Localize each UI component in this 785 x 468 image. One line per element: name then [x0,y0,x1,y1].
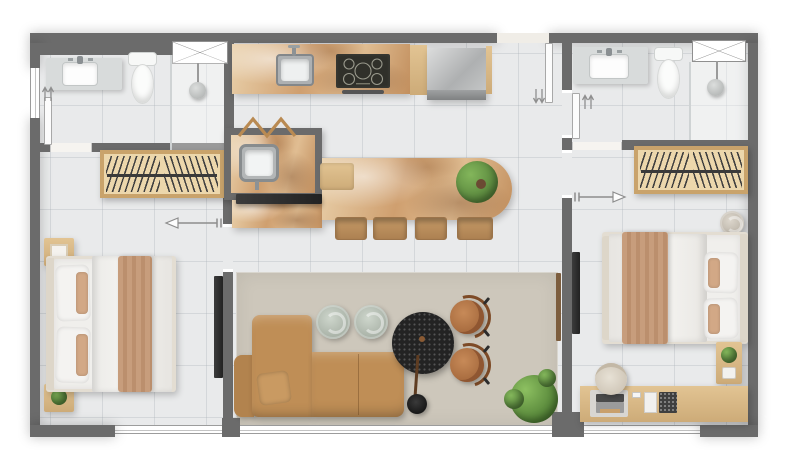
faucet-handle-icon [88,58,93,61]
jamb [562,150,572,153]
wall-left-lower [30,118,40,425]
laundry-basin [245,150,273,176]
wardrobe-rod [641,170,741,173]
wall-bottom-right [700,425,758,437]
desk-chair-seat [595,363,627,395]
bathroom-left-handle-arrows-icon [41,83,55,103]
stool-1 [335,217,367,240]
door-gap-bathroom-right [562,90,572,138]
wall-hall-right-a [562,43,572,90]
kitchen-sink [276,54,314,86]
lamp-icon [722,367,736,379]
lamp-finial-icon [419,336,425,342]
stool-2 [373,217,407,240]
faucet-handle-icon [597,50,602,53]
wardrobe-right [634,146,748,194]
wall-top-left [30,33,497,43]
jamb [562,195,572,198]
jamb [562,135,572,138]
accent-pillow [76,334,88,376]
laundry-faucet-icon [255,181,259,190]
window-shower-right [692,40,746,62]
bedroom-right-swing-arrow-icon [572,190,628,204]
entry-opening [497,33,549,43]
sink-left-bath [62,62,98,86]
screenshot-root: { "canvas": {"width": 785, "height": 468… [0,0,785,468]
accent-pillow [76,272,88,314]
sink-basin [281,59,309,81]
pouf-1 [316,305,350,339]
headboard [46,258,54,390]
pouf-2 [354,305,388,339]
accent-pillow [708,304,720,334]
floor-plan [30,33,758,437]
sofa-seam [358,354,359,415]
oven-handle [342,90,384,94]
phone [632,392,641,398]
toilet-right [652,46,686,104]
tv-panel-bedroom-left [214,276,223,378]
faucet-handle-icon [617,50,622,53]
sofa-armrest [234,355,254,417]
drying-rack-icon [236,115,300,139]
tv-panel-bedroom-right [572,252,580,334]
armchair-seat [450,348,484,382]
coffee-table [392,312,454,374]
wardrobe-rod [107,174,216,177]
entry-door-leaf [545,43,553,103]
window-bedroom-left [115,425,222,434]
living-plant-leaf [504,389,524,409]
armchair-seat [450,300,484,334]
wall-right [748,43,758,425]
island-left-slab [232,200,322,228]
bed-throw [118,256,152,392]
stool-3 [415,217,447,240]
wall-left-upper [30,43,40,68]
x-glass-icon [693,41,745,61]
wall-hall-right-c [562,198,572,425]
plant-pot-icon [476,179,486,189]
jamb [562,90,572,93]
faucet-icon [77,56,83,64]
wood-slat-panel [556,273,561,341]
entry-door-handle-arrows-icon [532,87,546,107]
kitchen-faucet-icon [288,45,300,48]
tv-panel-island [236,194,322,204]
living-plant-leaf [538,369,556,387]
faucet-handle-icon [68,58,73,61]
chair-leg-icon [483,329,490,337]
shower-zone-right [689,62,748,140]
plant-icon [721,347,737,363]
bedroom-left-swing-arrow-icon [162,216,224,230]
dark-box [659,392,677,413]
laptop-screen [596,394,624,402]
wardrobe-left [100,150,224,198]
wall-hall-right-b [562,138,572,150]
window-living [240,425,552,434]
nightstand-right [716,342,742,384]
fridge-door-split [427,90,486,100]
vanity-right [573,47,648,84]
bed-throw [622,232,668,344]
wall-bottom-left [30,425,115,437]
desk-chair [592,359,630,395]
cabinet-panel [410,45,427,95]
cabinet-panel [486,46,492,94]
armchair-1 [447,295,491,339]
bed-right [602,232,748,344]
cutting-board [320,163,354,190]
toilet-bowl [131,64,154,104]
laundry-sink [239,144,279,182]
accent-pillow [708,258,720,288]
window-left-wall [30,68,40,118]
shower-head-left [189,82,206,99]
laptop-accent [600,409,620,413]
bathroom-left-door-leaf [44,97,52,145]
threshold-bathroom-right [572,142,622,150]
footboard [602,236,609,340]
stool-4 [457,217,493,240]
sofa-pillow [256,370,292,406]
toilet-left [126,51,160,109]
door-gap-bedroom-left [223,224,233,272]
floor-plan-canvas [0,0,785,468]
burners-icon [336,54,390,88]
faucet-icon [606,48,612,56]
door-gap-bedroom-right [562,150,572,198]
window-bedroom-right [578,425,700,434]
bathroom-right-door-leaf [572,93,580,139]
armchair-2 [447,343,491,387]
shower-head-right [707,79,724,96]
headboard [740,234,748,342]
white-box [644,392,657,413]
jamb [223,269,233,272]
chair-leg-icon [483,377,490,385]
vanity-left [46,58,122,90]
refrigerator [427,48,486,100]
threshold-bathroom-left [50,143,92,152]
lamp-base [407,394,427,414]
bathroom-right-handle-arrows-icon [581,91,595,111]
cooktop [336,54,390,88]
bed-left [46,256,176,392]
toilet-bowl [657,59,680,99]
wall-bedroom-left-lower [223,272,233,425]
sink-right-bath [589,54,629,79]
